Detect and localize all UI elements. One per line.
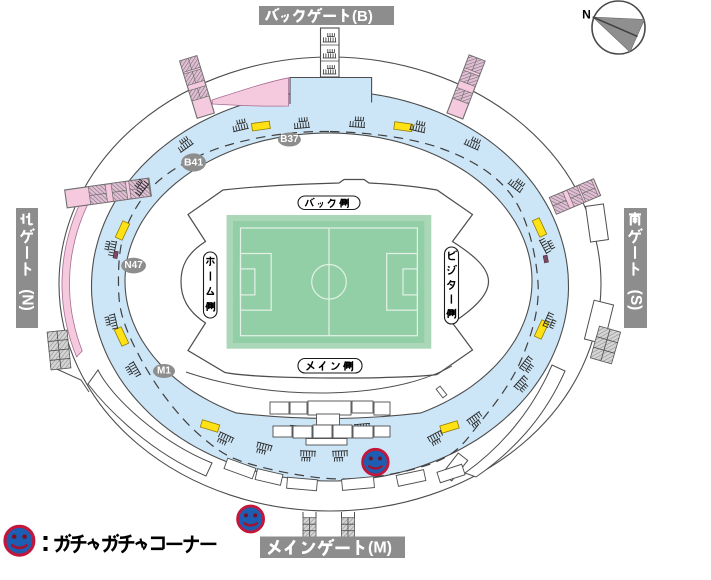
svg-text:(B): (B) (352, 8, 373, 25)
svg-text:B37: B37 (280, 134, 299, 145)
svg-text:(N): (N) (19, 289, 36, 311)
svg-text:(S): (S) (627, 290, 644, 311)
svg-text:(M): (M) (368, 540, 392, 557)
svg-text:M1: M1 (157, 366, 171, 377)
svg-text:N: N (582, 8, 591, 22)
svg-text:B41: B41 (184, 157, 203, 169)
svg-text:N47: N47 (124, 260, 143, 271)
